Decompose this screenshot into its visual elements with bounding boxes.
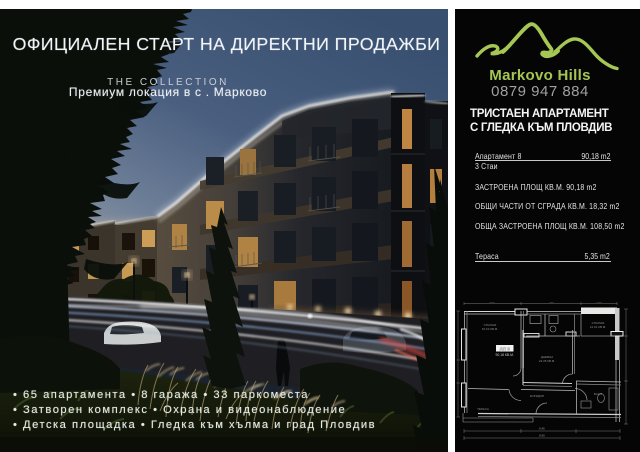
svg-text:90,18 КВ.М.: 90,18 КВ.М. <box>496 353 514 357</box>
svg-text:4,05: 4,05 <box>548 302 554 304</box>
svg-text:АП 8: АП 8 <box>500 346 511 351</box>
svg-text:8,90: 8,90 <box>539 434 545 438</box>
svg-text:БАНЯ: БАНЯ <box>594 392 602 396</box>
svg-text:15,63 КВ.М.: 15,63 КВ.М. <box>482 327 498 331</box>
svg-text:3,85: 3,85 <box>489 302 495 304</box>
svg-text:3,65: 3,65 <box>596 302 602 304</box>
svg-text:24,35 КВ.М.: 24,35 КВ.М. <box>539 359 555 363</box>
svg-text:КОРИДОР: КОРИДОР <box>530 394 545 398</box>
svg-text:ТЕРАСА: ТЕРАСА <box>477 407 489 411</box>
svg-text:12,01 КВ.М.: 12,01 КВ.М. <box>590 325 606 329</box>
svg-text:8,45: 8,45 <box>539 427 545 431</box>
